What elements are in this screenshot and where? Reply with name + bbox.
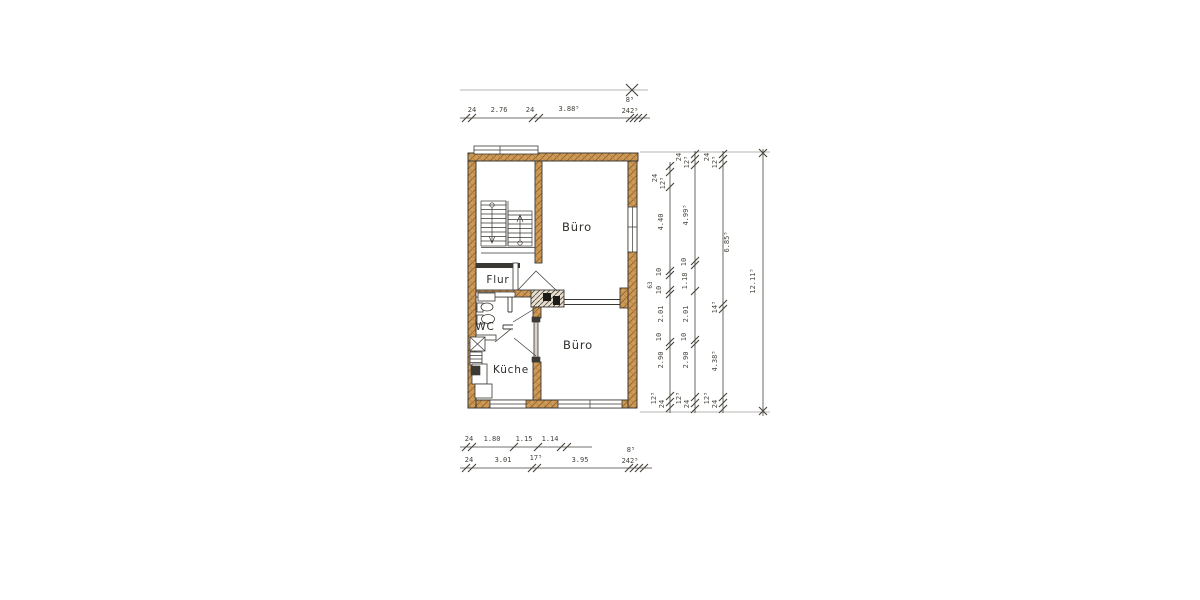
stair-arrow-start bbox=[518, 241, 522, 245]
dimension-chain-right-inner: 24 12⁵ 4.40 10 63 10 2.01 10 2.90 12⁵ 24 bbox=[647, 162, 674, 413]
dim-label: 12.11⁵ bbox=[749, 268, 757, 293]
dim-label: 1.15 bbox=[516, 435, 533, 443]
dimension-chain-right-total: 12.11⁵ bbox=[749, 149, 767, 416]
dim-label: 24 bbox=[711, 400, 719, 408]
room-label-kitchen: Küche bbox=[493, 364, 529, 376]
wall-right bbox=[628, 161, 637, 408]
wall-wc-east bbox=[508, 297, 512, 312]
dim-label: 24 bbox=[683, 400, 691, 408]
room-label-office-top: Büro bbox=[562, 220, 592, 234]
dim-label: 10 bbox=[680, 258, 688, 266]
wc-cistern bbox=[478, 293, 495, 301]
dimension-chain-right-middle: 24 12⁵ 4.99⁵ 10 1.18 2.01 10 2.90 12⁵ 24 bbox=[675, 150, 699, 413]
wall-hall-right bbox=[513, 263, 518, 292]
stair-landing bbox=[481, 248, 535, 254]
dim-label: 6.85⁵ bbox=[723, 231, 731, 252]
door-swing-wc bbox=[495, 329, 511, 342]
dim-label: 24 bbox=[675, 153, 683, 161]
dim-label: 12⁵ bbox=[650, 392, 658, 405]
chimney-flue bbox=[553, 296, 560, 305]
dim-label: 3.01 bbox=[495, 456, 512, 464]
dim-label: 24 bbox=[651, 174, 659, 182]
wall-stair-office bbox=[535, 161, 542, 263]
dim-label: 8⁵ bbox=[627, 446, 635, 454]
wall-kitchen-office-lower bbox=[533, 362, 541, 400]
dim-label: 4.40 bbox=[657, 214, 665, 231]
dim-label: 1.18 bbox=[681, 273, 689, 290]
dimension-chain-right-outer: 24 12⁵ 6.85⁵ 14⁵ 4.38⁵ 12⁵ 24 bbox=[703, 150, 731, 413]
wall-middle bbox=[564, 300, 628, 305]
dim-label: 242⁵ bbox=[622, 457, 639, 465]
dim-label: 12⁵ bbox=[675, 392, 683, 405]
stair-divider bbox=[506, 201, 508, 246]
dimension-chain-bottom-upper: 24 1.80 1.15 1.14 bbox=[460, 435, 592, 451]
dim-label: 2.01 bbox=[657, 306, 665, 323]
dim-label: 3.95 bbox=[572, 456, 589, 464]
stair-arrow-up bbox=[517, 215, 523, 240]
door-jamb bbox=[532, 317, 540, 322]
dimension-chain-top: 24 2.76 24 3.88⁵ 8⁵ 242⁵ bbox=[460, 84, 650, 122]
door-swing-entry bbox=[518, 271, 557, 291]
dim-label: 1.14 bbox=[542, 435, 559, 443]
dim-label: 8⁵ bbox=[626, 96, 634, 104]
dim-label: 12⁵ bbox=[659, 177, 667, 190]
dim-label: 24 bbox=[658, 400, 666, 408]
dim-label: 12⁵ bbox=[683, 156, 691, 169]
kitchen-stove bbox=[471, 366, 480, 375]
room-label-hall: Flur bbox=[486, 274, 509, 286]
dim-label: 10 bbox=[655, 268, 663, 276]
stair-arrow-down bbox=[489, 207, 495, 243]
staircase bbox=[481, 201, 535, 253]
dim-label: 2.76 bbox=[491, 106, 508, 114]
dim-label: 10 bbox=[655, 286, 663, 294]
floorplan-drawing: Büro Flur WC Küche Büro 24 2.76 24 3.88⁵… bbox=[0, 0, 1200, 600]
door-swing-kitchen bbox=[514, 338, 536, 356]
dim-label: 24 bbox=[526, 106, 534, 114]
wall-middle-junction bbox=[620, 288, 628, 308]
dimension-chain-bottom-lower: 24 3.01 17⁵ 3.95 8⁵ 242⁵ bbox=[460, 446, 652, 472]
dim-label: 17⁵ bbox=[530, 454, 543, 462]
dim-label: 10 bbox=[680, 333, 688, 341]
dim-label: 4.99⁵ bbox=[682, 204, 690, 225]
dim-label: 4.38⁵ bbox=[711, 350, 719, 371]
dim-label: 2.90 bbox=[657, 352, 665, 369]
dim-label: 242⁵ bbox=[622, 107, 639, 115]
room-label-wc: WC bbox=[475, 321, 494, 333]
dim-label: 1.80 bbox=[484, 435, 501, 443]
wall-wc-jamb bbox=[503, 325, 513, 329]
dim-label: 63 bbox=[647, 281, 654, 289]
dim-label: 12⁵ bbox=[711, 156, 719, 169]
dim-label: 24 bbox=[468, 106, 476, 114]
dim-label: 3.88⁵ bbox=[558, 105, 579, 113]
dim-label: 12⁵ bbox=[703, 392, 711, 405]
wc-fixtures bbox=[477, 293, 495, 324]
dim-label: 24 bbox=[465, 435, 473, 443]
dim-label: 10 bbox=[655, 333, 663, 341]
dim-label: 24 bbox=[465, 456, 473, 464]
dim-label: 2.90 bbox=[682, 352, 690, 369]
room-label-office-bottom: Büro bbox=[563, 338, 593, 352]
kitchen-radiator bbox=[470, 352, 482, 365]
dim-label: 2.01 bbox=[682, 306, 690, 323]
door-jamb bbox=[532, 357, 540, 362]
wc-sink bbox=[481, 303, 493, 311]
kitchen-sink-unit bbox=[475, 384, 492, 398]
dim-label: 24 bbox=[703, 153, 711, 161]
door-leaf-office-bottom bbox=[534, 322, 538, 358]
dim-label: 14⁵ bbox=[711, 301, 719, 314]
chimney-flue bbox=[543, 293, 551, 301]
